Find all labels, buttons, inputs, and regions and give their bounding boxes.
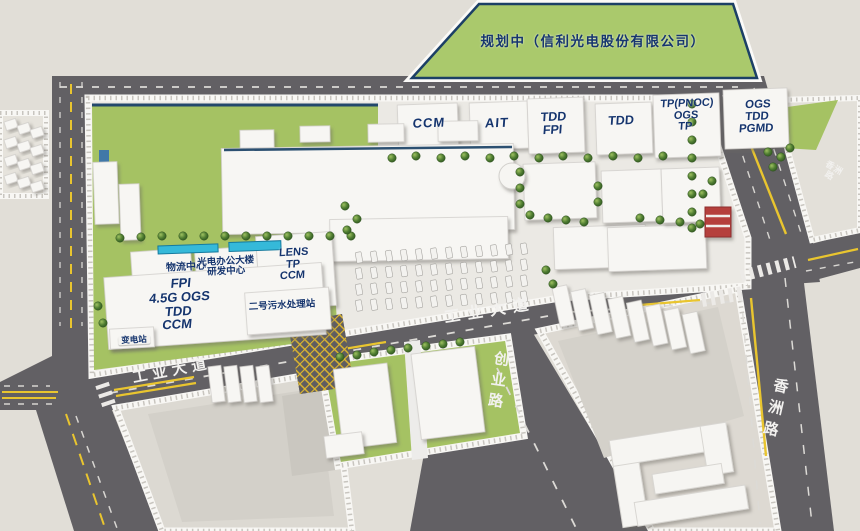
tree [437, 154, 445, 162]
tree [688, 136, 696, 144]
tree [584, 154, 592, 162]
tree [696, 220, 704, 228]
tree [336, 353, 344, 361]
tree [461, 152, 469, 160]
tree [263, 232, 271, 240]
tree [764, 148, 772, 156]
tree [158, 232, 166, 240]
tree [242, 232, 250, 240]
tree [594, 198, 602, 206]
building [324, 432, 364, 458]
red-building [705, 207, 731, 237]
building [300, 126, 330, 143]
building [411, 346, 485, 439]
tree [456, 338, 464, 346]
building [438, 121, 478, 142]
tree [688, 190, 696, 198]
tree [688, 100, 696, 108]
tree [688, 118, 696, 126]
tree [439, 340, 447, 348]
building [527, 97, 585, 154]
tree [326, 232, 334, 240]
tree [412, 152, 420, 160]
tree [422, 342, 430, 350]
tree [526, 211, 534, 219]
tree [594, 182, 602, 190]
tree [370, 348, 378, 356]
tree [580, 218, 588, 226]
tree [486, 154, 494, 162]
tree [559, 152, 567, 160]
building [368, 124, 404, 143]
tree [542, 266, 550, 274]
tree [516, 184, 524, 192]
tree [659, 152, 667, 160]
tree [777, 153, 785, 161]
tree [404, 344, 412, 352]
tree [688, 172, 696, 180]
tree [549, 280, 557, 288]
map-canvas [0, 0, 860, 531]
tree [137, 233, 145, 241]
road-left [52, 76, 90, 332]
tree [284, 232, 292, 240]
tree [786, 144, 794, 152]
tree [609, 152, 617, 160]
tree [516, 168, 524, 176]
tree [343, 226, 351, 234]
tree [676, 218, 684, 226]
tree [353, 351, 361, 359]
building [110, 327, 155, 349]
building [653, 93, 721, 158]
planned-area [412, 4, 757, 78]
building [523, 162, 597, 220]
building [601, 169, 663, 223]
tree [116, 234, 124, 242]
tree [94, 302, 102, 310]
tree [636, 214, 644, 222]
tree [341, 202, 349, 210]
tree [634, 154, 642, 162]
tree [699, 190, 707, 198]
tree [387, 346, 395, 354]
tree [688, 224, 696, 232]
tree [688, 154, 696, 162]
site-plan-map: 规划中（信利光电股份有限公司） CCM AIT TDD FPI TDD TP(P… [0, 0, 860, 531]
building [119, 184, 141, 241]
tree [769, 163, 777, 171]
building [245, 287, 332, 335]
tree [179, 232, 187, 240]
tree [510, 152, 518, 160]
building [93, 162, 119, 225]
tree [388, 154, 396, 162]
tree [99, 319, 107, 327]
tree [562, 216, 570, 224]
tree [353, 215, 361, 223]
tree [656, 216, 664, 224]
building [240, 130, 274, 149]
building [595, 102, 653, 155]
tree [544, 214, 552, 222]
tree [708, 177, 716, 185]
tree [200, 232, 208, 240]
tree [688, 208, 696, 216]
tree [221, 232, 229, 240]
tree [516, 200, 524, 208]
building [723, 88, 789, 149]
tree [305, 232, 313, 240]
tree [535, 154, 543, 162]
